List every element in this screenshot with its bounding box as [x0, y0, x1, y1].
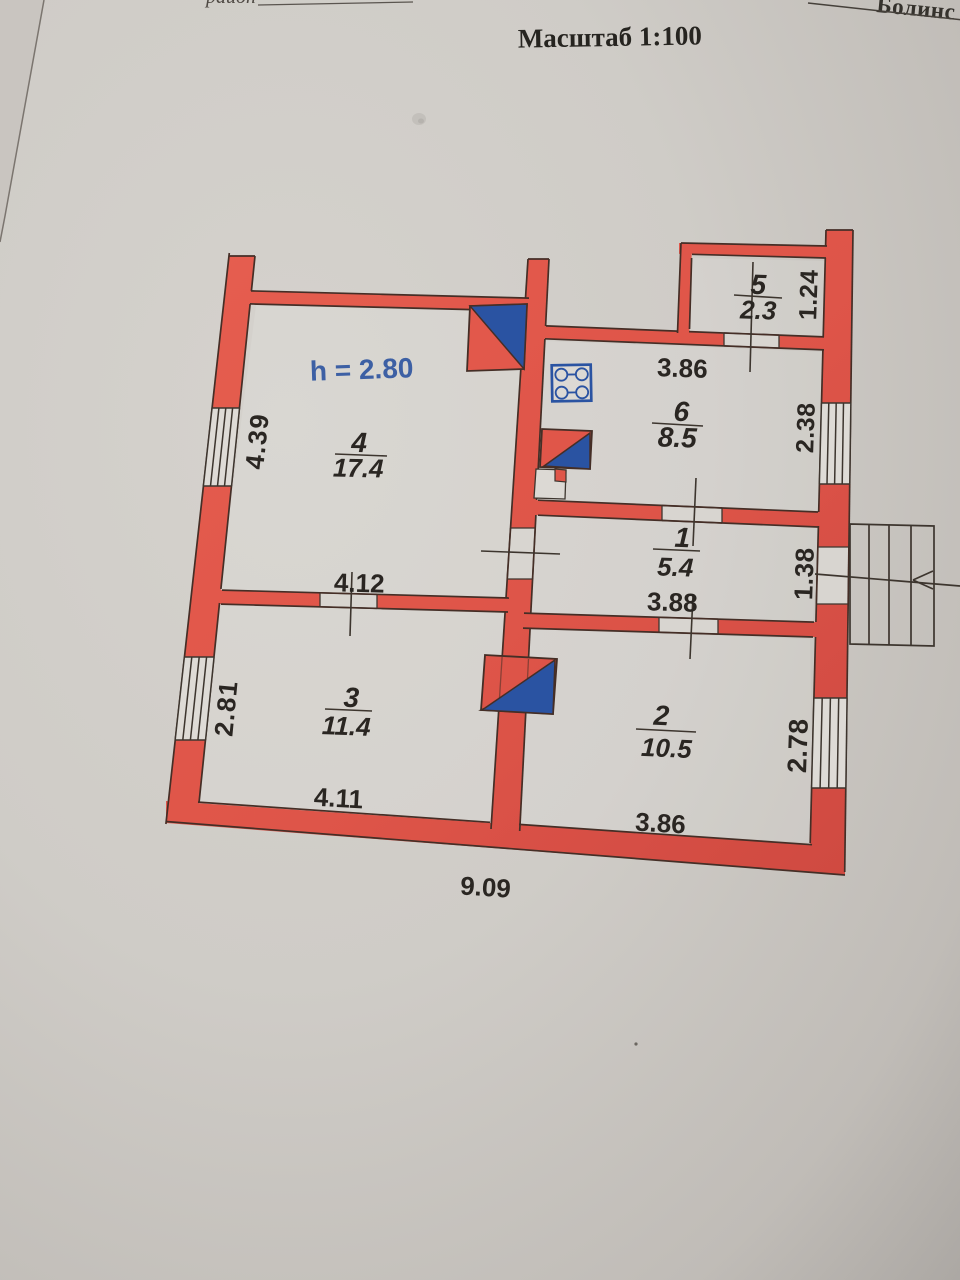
svg-text:h = 2.80: h = 2.80 — [309, 352, 414, 387]
svg-text:17.4: 17.4 — [333, 453, 385, 484]
svg-text:4.12: 4.12 — [334, 567, 385, 598]
svg-text:5.4: 5.4 — [657, 551, 695, 582]
svg-text:4.11: 4.11 — [313, 782, 364, 815]
svg-text:3.86: 3.86 — [634, 806, 686, 839]
svg-text:1.24: 1.24 — [794, 269, 824, 321]
svg-text:3.88: 3.88 — [647, 586, 699, 618]
svg-text:8.5: 8.5 — [657, 421, 697, 453]
svg-text:район: район — [204, 0, 256, 8]
svg-text:3.86: 3.86 — [656, 352, 708, 384]
svg-text:3: 3 — [343, 682, 360, 714]
svg-text:2.3: 2.3 — [739, 294, 778, 325]
svg-text:1.38: 1.38 — [788, 547, 820, 601]
svg-text:2.81: 2.81 — [208, 679, 243, 738]
svg-text:1: 1 — [674, 522, 691, 554]
svg-text:2.78: 2.78 — [782, 718, 814, 774]
svg-text:4.39: 4.39 — [239, 411, 275, 470]
svg-text:2: 2 — [652, 700, 670, 732]
svg-text:10.5: 10.5 — [640, 732, 692, 764]
svg-text:Масштаб 1:100: Масштаб 1:100 — [518, 20, 703, 53]
svg-text:9.09: 9.09 — [459, 870, 511, 903]
svg-text:2.38: 2.38 — [791, 402, 821, 454]
svg-text:11.4: 11.4 — [321, 710, 371, 742]
